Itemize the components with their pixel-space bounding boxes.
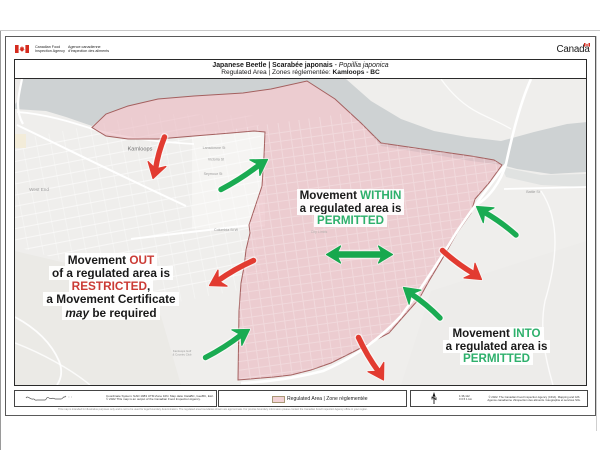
svg-text:West End: West End — [29, 187, 49, 192]
svg-text:Seymour St: Seymour St — [204, 172, 223, 176]
svg-text:& Country Club: & Country Club — [173, 352, 192, 356]
svg-text:Kamloops: Kamloops — [128, 147, 153, 153]
svg-text:City Limits: City Limits — [311, 230, 328, 234]
svg-text:Victoria St: Victoria St — [208, 158, 224, 162]
svg-text:Lansdowne St: Lansdowne St — [203, 146, 226, 150]
svg-text:Columbia St W: Columbia St W — [214, 228, 239, 232]
svg-text:Battle St: Battle St — [526, 190, 540, 194]
